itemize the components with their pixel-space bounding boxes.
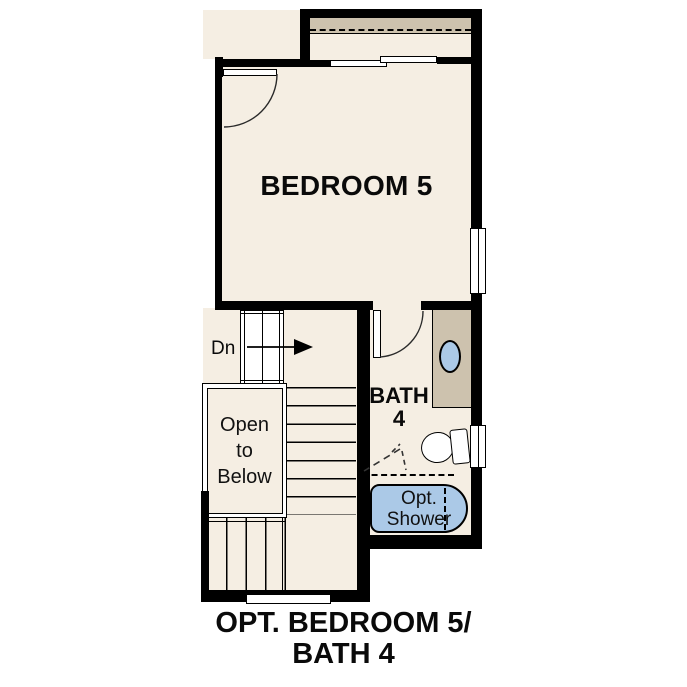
bottom-wall-opening (246, 594, 331, 604)
tread-line (282, 518, 283, 590)
wall-top (300, 9, 482, 18)
wall-entry-top (215, 59, 305, 67)
toilet-tank-icon (449, 428, 471, 465)
optional-shower-tub: Opt. Shower (370, 484, 468, 533)
stair-treads-lower-flight (208, 517, 286, 590)
closet-bypass-door-left (330, 60, 387, 67)
plan-title-line1: OPT. BEDROOM 5/ (0, 608, 687, 639)
wall-left (215, 59, 222, 310)
closet-rod-dashed-line (310, 29, 471, 31)
bath-label-line1: BATH (357, 384, 441, 407)
bedroom-window (470, 228, 486, 294)
rail-line (241, 380, 283, 381)
open-to-below-line1: Open (220, 412, 269, 438)
wall-stair-bath-divider (357, 301, 370, 602)
bedroom-entry-door-leaf (223, 69, 277, 76)
rail-line (241, 313, 283, 314)
open-to-below-line3: Below (217, 464, 271, 490)
tub-dashed-divider (444, 488, 446, 530)
open-to-below-line2: to (236, 438, 253, 464)
floor-area-top-left (203, 10, 300, 59)
opt-shower-label-line2: Shower (387, 509, 451, 530)
wall-closet-door-left (300, 60, 330, 67)
plan-title-line2: BATH 4 (0, 639, 687, 670)
bath-label-line2: 4 (357, 407, 441, 430)
closet-bypass-door-right (380, 56, 437, 63)
stair-upper-run-railing (240, 310, 284, 384)
open-to-below-label: Open to Below (207, 388, 283, 514)
window-mullion (478, 229, 479, 293)
bath-door-leaf (373, 310, 381, 358)
plan-title: OPT. BEDROOM 5/ BATH 4 (0, 608, 687, 670)
wall-closet-door-right (437, 57, 471, 64)
wall-stair-left-stub (201, 491, 209, 518)
stairs-down-label: Dn (211, 338, 235, 360)
bath-doorway-floor (373, 301, 421, 310)
closet-shelf (310, 18, 471, 34)
opt-shower-label-line1: Opt. (401, 488, 437, 509)
stair-treads-upper-flight (287, 387, 356, 515)
tread-line (208, 521, 285, 522)
wall-bedroom-bottom-right (421, 301, 482, 310)
window-mullion (478, 426, 479, 467)
bath-label: BATH 4 (357, 384, 441, 430)
bath-window (470, 425, 486, 468)
rail-line (244, 311, 245, 383)
floor-plan: Opt. Shower Open to Below (0, 0, 687, 687)
sink-icon (439, 340, 461, 373)
wall-bath-bottom (357, 535, 482, 549)
rail-line (262, 311, 263, 383)
wall-bedroom-bottom-left (215, 301, 373, 310)
optional-wall-dashed-line (362, 474, 454, 476)
rail-line (279, 311, 280, 383)
bedroom-label: BEDROOM 5 (222, 170, 471, 202)
open-to-below-void: Open to Below (202, 383, 287, 518)
